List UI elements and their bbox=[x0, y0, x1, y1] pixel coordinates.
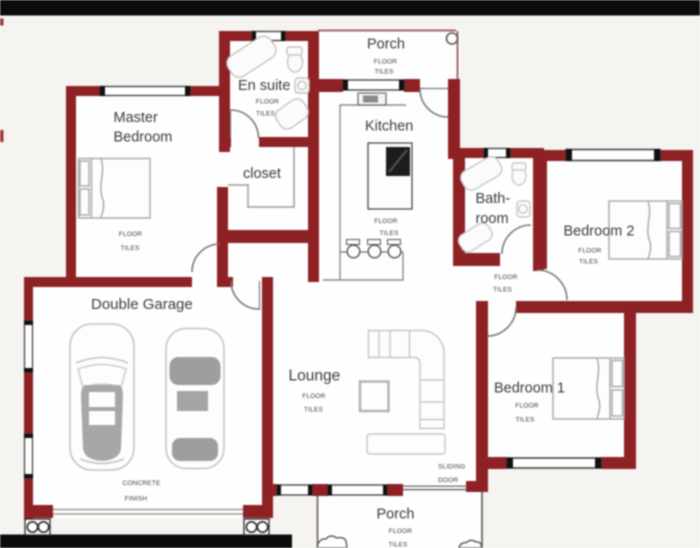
svg-text:TILES: TILES bbox=[493, 287, 513, 294]
svg-text:FINISH: FINISH bbox=[125, 496, 148, 503]
svg-text:FLOOR: FLOOR bbox=[578, 248, 601, 255]
svg-text:Double Garage: Double Garage bbox=[91, 296, 193, 313]
svg-text:Master: Master bbox=[114, 110, 158, 126]
svg-text:FLOOR: FLOOR bbox=[256, 99, 279, 106]
svg-text:Bath-: Bath- bbox=[476, 191, 511, 207]
svg-text:FLOOR: FLOOR bbox=[374, 218, 397, 225]
svg-text:CONCRETE: CONCRETE bbox=[122, 480, 161, 487]
svg-text:DOOR: DOOR bbox=[438, 477, 458, 484]
svg-text:TILES: TILES bbox=[374, 69, 394, 76]
svg-text:TILES: TILES bbox=[388, 542, 408, 548]
svg-text:TILES: TILES bbox=[304, 407, 324, 414]
svg-text:Lounge: Lounge bbox=[289, 368, 341, 385]
svg-text:TILES: TILES bbox=[515, 417, 535, 424]
svg-text:FLOOR: FLOOR bbox=[374, 59, 397, 66]
svg-text:room: room bbox=[476, 211, 509, 227]
svg-text:Porch: Porch bbox=[367, 37, 405, 53]
svg-text:Bedroom: Bedroom bbox=[114, 130, 173, 146]
svg-text:closet: closet bbox=[243, 166, 281, 182]
svg-text:FLOOR: FLOOR bbox=[302, 393, 325, 400]
svg-text:TILES: TILES bbox=[256, 111, 276, 118]
svg-text:TILES: TILES bbox=[379, 230, 399, 237]
svg-text:SLIDING: SLIDING bbox=[438, 464, 465, 471]
svg-text:FLOOR: FLOOR bbox=[389, 528, 412, 535]
svg-text:Porch: Porch bbox=[377, 507, 415, 523]
svg-text:En suite: En suite bbox=[238, 78, 290, 94]
svg-text:TILES: TILES bbox=[579, 259, 599, 266]
svg-text:Bedroom 1: Bedroom 1 bbox=[494, 381, 565, 397]
svg-text:FLOOR: FLOOR bbox=[515, 403, 538, 410]
svg-text:FLOOR: FLOOR bbox=[494, 274, 517, 281]
svg-text:Kitchen: Kitchen bbox=[365, 119, 413, 135]
svg-text:TILES: TILES bbox=[120, 245, 140, 252]
svg-text:Bedroom 2: Bedroom 2 bbox=[564, 224, 635, 240]
svg-text:FLOOR: FLOOR bbox=[119, 231, 142, 238]
